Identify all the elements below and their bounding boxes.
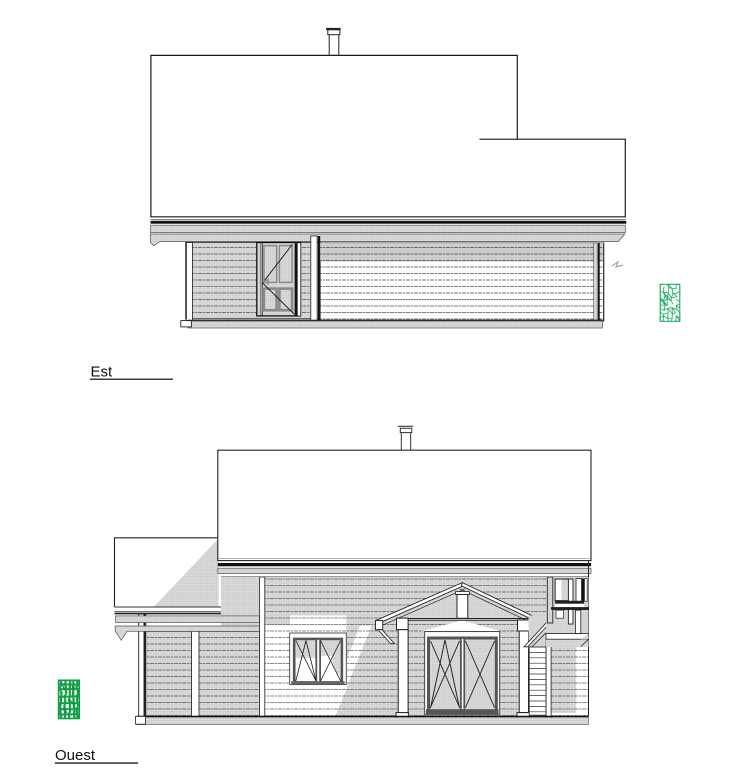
svg-text:Est: Est [91,364,114,381]
svg-text:Ouest: Ouest [55,747,96,764]
